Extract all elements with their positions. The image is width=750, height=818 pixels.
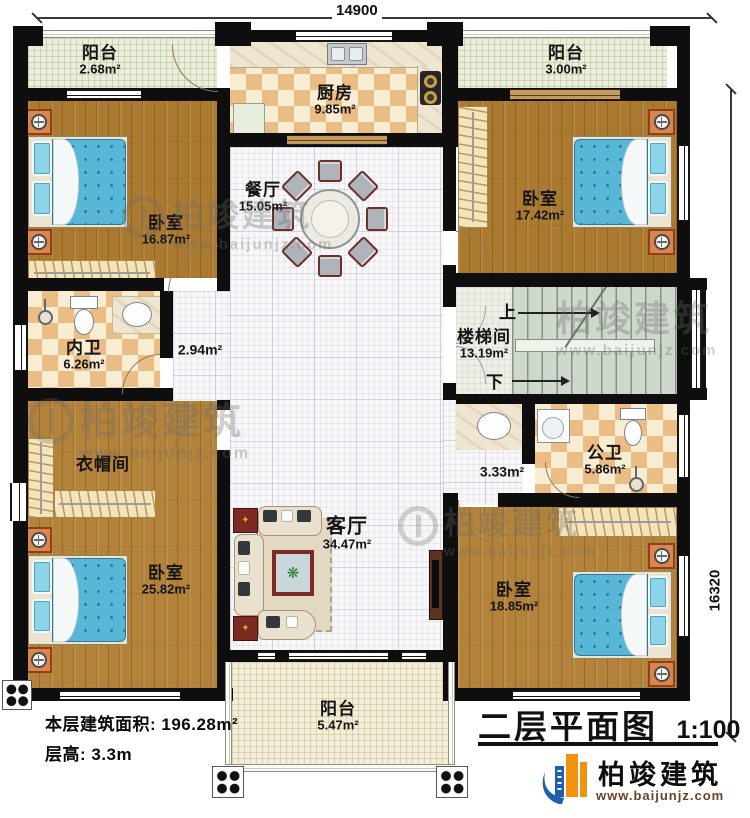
cushion <box>238 541 250 555</box>
room-area: 25.82m² <box>142 582 190 596</box>
room-area: 5.86m² <box>584 462 625 476</box>
room-name: 卧室 <box>490 581 538 599</box>
room-area: 17.42m² <box>516 208 564 222</box>
lamp-icon <box>654 234 670 250</box>
pillow <box>648 576 668 609</box>
watermark: 柏竣建筑 www.baijunjz.com <box>172 190 333 253</box>
kitchen-pass-window <box>287 135 387 145</box>
toilet-bowl <box>624 420 642 446</box>
watermark-url: www.baijunjz.com <box>444 543 597 559</box>
cushion <box>281 510 293 522</box>
cushion <box>238 561 250 575</box>
floor-height-text: 层高: 3.3m <box>45 740 132 765</box>
balcony-railing <box>43 30 215 38</box>
sink-basin <box>349 47 363 61</box>
room-area: 18.85m² <box>490 599 538 613</box>
stair-down-label: 下 <box>486 368 503 393</box>
cushion <box>263 510 277 522</box>
wall <box>443 287 456 307</box>
stair-up-label: 上 <box>499 298 516 323</box>
wall <box>13 278 164 291</box>
window <box>677 415 690 477</box>
watermark-brand: 柏竣建筑 <box>172 190 333 236</box>
nightstand <box>648 109 675 135</box>
wall <box>522 404 535 464</box>
sink-icon <box>122 302 152 327</box>
toilet-icon <box>620 408 646 420</box>
door-post <box>388 650 402 662</box>
room-label-stairwell: 楼梯间 13.19m² <box>457 328 511 359</box>
balcony-railing <box>448 662 455 768</box>
lamp-icon <box>31 532 47 548</box>
dining-chair <box>318 160 342 182</box>
cushion <box>238 582 250 596</box>
sink-icon <box>477 412 511 440</box>
room-label-hall-right: 3.33m² <box>480 465 524 480</box>
room-label-living: 客厅 34.47m² <box>323 517 371 552</box>
room-area: 6.26m² <box>63 357 104 371</box>
watermark-url: www.baijunjz.com <box>172 236 333 253</box>
pillow <box>648 181 668 216</box>
window <box>296 30 392 42</box>
room-label-balcony-top-right: 阳台 3.00m² <box>545 44 586 75</box>
shower-hose <box>44 299 46 311</box>
room-name: 厨房 <box>314 84 355 102</box>
wall <box>443 383 456 400</box>
room-name: 公卫 <box>584 444 625 462</box>
lamp-icon <box>31 234 47 250</box>
cushion <box>266 616 280 628</box>
balcony-railing <box>463 30 650 38</box>
watermark-logo-icon <box>398 506 438 546</box>
burner-icon <box>424 75 437 88</box>
lamp-icon <box>654 548 670 564</box>
end-table: ✦ <box>233 616 258 641</box>
wall <box>443 101 456 231</box>
room-name: 卧室 <box>516 190 564 208</box>
lamp-icon <box>654 666 670 682</box>
room-label-bedroom-bottom-right: 卧室 18.85m² <box>490 581 538 612</box>
end-table: ✦ <box>233 508 258 533</box>
room-name: 阳台 <box>317 700 358 718</box>
dimension-line-right <box>730 90 732 738</box>
shower-hose <box>635 466 637 478</box>
room-area: 3.00m² <box>545 62 586 76</box>
room-area: 13.19m² <box>457 346 511 360</box>
nightstand <box>25 527 52 553</box>
brand-name: 柏竣建筑 <box>598 753 722 792</box>
room-name: 阳台 <box>545 44 586 62</box>
room-label-hall-left: 2.94m² <box>178 343 222 358</box>
nightstand <box>648 229 675 255</box>
bed-sheet <box>621 574 647 656</box>
pillow <box>32 560 52 594</box>
watermark-url: www.baijunjz.com <box>80 445 250 463</box>
watermark: 柏竣建筑 www.baijunjz.com <box>80 390 250 463</box>
watermark: 柏竣建筑 www.baijunjz.com <box>444 498 597 559</box>
room-area: 2.94m² <box>178 343 222 358</box>
nightstand <box>25 229 52 255</box>
wall <box>13 26 43 46</box>
washer-drum <box>542 417 564 439</box>
dining-chair <box>318 255 342 277</box>
watermark-logo-icon <box>28 398 74 444</box>
room-area: 2.68m² <box>79 62 120 76</box>
wall <box>650 26 690 46</box>
sink-basin <box>331 47 345 61</box>
nightstand <box>648 543 675 569</box>
window <box>677 556 690 636</box>
window <box>60 690 180 701</box>
lamp-icon <box>31 652 47 668</box>
dimension-label-right: 16320 <box>706 566 723 616</box>
toilet-bowl <box>74 309 94 335</box>
watermark-logo-icon <box>122 196 164 238</box>
dining-chair <box>366 207 388 231</box>
balcony-railing <box>225 764 455 772</box>
balcony-post <box>2 680 32 710</box>
room-label-bedroom-bottom-left: 卧室 25.82m² <box>142 564 190 595</box>
toilet-icon <box>70 296 98 309</box>
wardrobe <box>54 490 156 518</box>
plan-scale: 1:100 <box>676 716 740 745</box>
floor-area-text: 本层建筑面积: 196.28m² <box>45 710 238 735</box>
lamp-icon <box>654 114 670 130</box>
room-name: 楼梯间 <box>457 328 511 346</box>
brand-logo-icon <box>538 750 590 806</box>
watermark-brand: 柏竣建筑 <box>556 290 717 342</box>
room-label-bath-master: 内卫 6.26m² <box>63 339 104 370</box>
wall <box>443 273 690 287</box>
room-label-bath-public: 公卫 5.86m² <box>584 444 625 475</box>
pillow <box>32 141 52 176</box>
room-name: 内卫 <box>63 339 104 357</box>
stair-down-arrow <box>512 380 566 382</box>
fridge <box>233 103 265 136</box>
room-label-balcony-bottom: 阳台 5.47m² <box>317 700 358 731</box>
watermark: 柏竣建筑 www.baijunjz.com <box>556 290 717 359</box>
balcony-post <box>436 766 468 798</box>
nightstand <box>25 109 52 135</box>
nightstand <box>648 661 675 687</box>
room-name: 阳台 <box>79 44 120 62</box>
tv-icon <box>432 560 439 608</box>
pillow <box>32 599 52 633</box>
watermark-url: www.baijunjz.com <box>556 342 717 359</box>
room-label-bedroom-top-right: 卧室 17.42m² <box>516 190 564 221</box>
window <box>677 146 690 220</box>
pillow <box>648 614 668 647</box>
wall <box>160 291 173 358</box>
dimension-label-top: 14900 <box>332 2 382 19</box>
room-area: 34.47m² <box>323 538 371 552</box>
page-title: 二层平面图 <box>478 700 658 748</box>
coffee-table: ❋ <box>272 550 314 596</box>
wardrobe <box>458 106 488 228</box>
door-post <box>275 650 289 662</box>
shower-icon <box>38 310 53 325</box>
room-label-kitchen: 厨房 9.85m² <box>314 84 355 115</box>
window <box>13 325 28 370</box>
wall <box>456 394 690 404</box>
floor-plan-canvas: ❋ ✦ ✦ <box>0 0 750 818</box>
pillow <box>32 181 52 216</box>
pillow <box>648 141 668 176</box>
nightstand <box>25 647 52 673</box>
room-area: 3.33m² <box>480 465 524 480</box>
balcony-post <box>212 766 244 798</box>
watermark-brand: 柏竣建筑 <box>80 390 250 445</box>
window <box>10 483 28 521</box>
room-name: 客厅 <box>323 517 371 538</box>
window <box>67 89 141 100</box>
room-label-balcony-top-left: 阳台 2.68m² <box>79 44 120 75</box>
wardrobe <box>28 438 54 518</box>
watermark-brand: 柏竣建筑 <box>444 498 597 543</box>
brand-url: www.baijunjz.com <box>596 788 724 803</box>
plan-title: 二层平面图 1:100 <box>478 700 740 748</box>
room-area: 9.85m² <box>314 102 355 116</box>
room-area: 5.47m² <box>317 718 358 732</box>
bed-sheet <box>621 139 647 225</box>
cushion <box>286 616 298 628</box>
burner-icon <box>424 91 437 104</box>
room-name: 卧室 <box>142 564 190 582</box>
balcony-sliding-door <box>510 89 620 100</box>
cushion <box>297 510 311 522</box>
shower-icon <box>629 477 644 492</box>
lamp-icon <box>31 114 47 130</box>
